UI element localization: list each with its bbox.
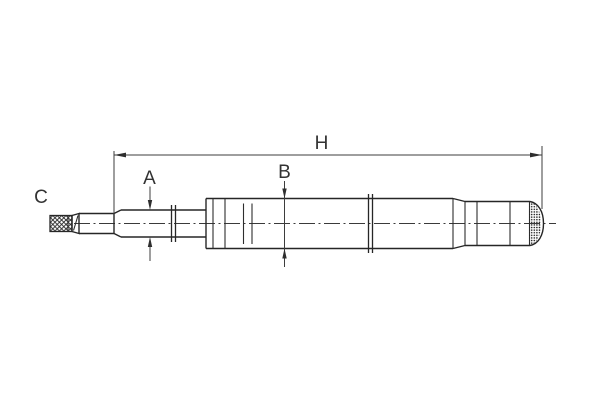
taper-top-edge — [453, 199, 465, 202]
drawing-canvas: H A B C — [0, 0, 600, 400]
h-label: H — [315, 133, 329, 154]
h-arrow-right — [530, 153, 542, 158]
a-arrow-down — [148, 200, 152, 210]
shock-absorber-technical-drawing: H A B C — [0, 0, 600, 400]
threaded-stud — [50, 216, 72, 232]
label-c: C — [34, 187, 48, 208]
a-arrow-up — [148, 237, 152, 247]
b-arrow-up — [282, 249, 286, 259]
a-label: A — [143, 168, 156, 189]
rod-step-chamfer-bottom — [114, 234, 121, 238]
dimension-a: A — [143, 168, 156, 261]
b-arrow-down — [282, 189, 286, 199]
rod-step-chamfer-top — [114, 210, 121, 214]
b-label: B — [278, 162, 291, 183]
h-arrow-left — [114, 153, 126, 158]
taper-bottom-edge — [453, 246, 465, 249]
dimension-b: B — [278, 162, 291, 267]
c-label: C — [34, 187, 48, 208]
